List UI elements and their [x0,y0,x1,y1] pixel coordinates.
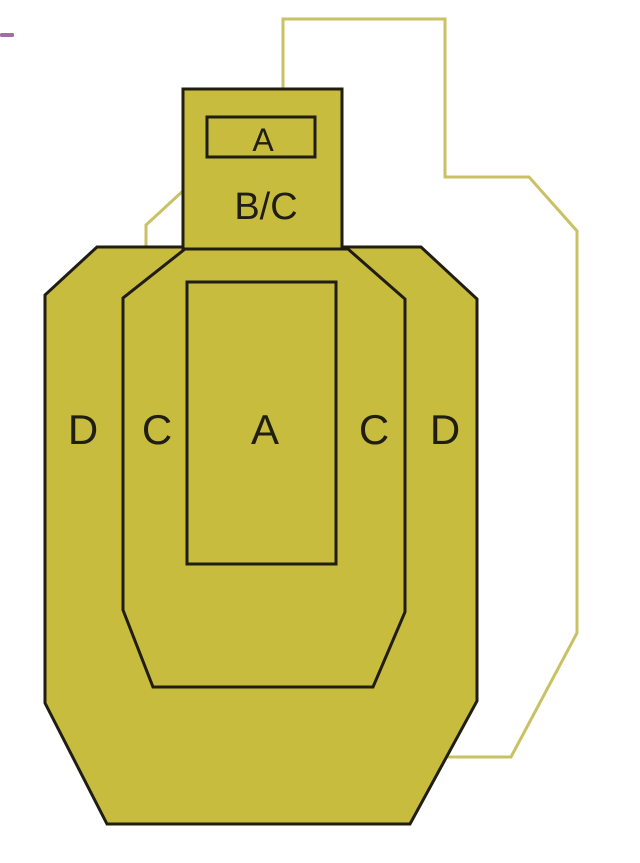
head-bc-zone-label: B/C [234,186,297,228]
head-a-zone-label: A [252,122,274,158]
c-zone-label-left: C [142,406,172,453]
c-zone-label-right: C [359,406,389,453]
d-zone-label-right: D [430,406,460,453]
scan-mark [0,33,14,37]
target-diagram: A B/C D C A C D [0,0,640,863]
a-zone-label: A [251,406,279,453]
target-body-d-zone [45,247,477,824]
d-zone-label-left: D [68,406,98,453]
